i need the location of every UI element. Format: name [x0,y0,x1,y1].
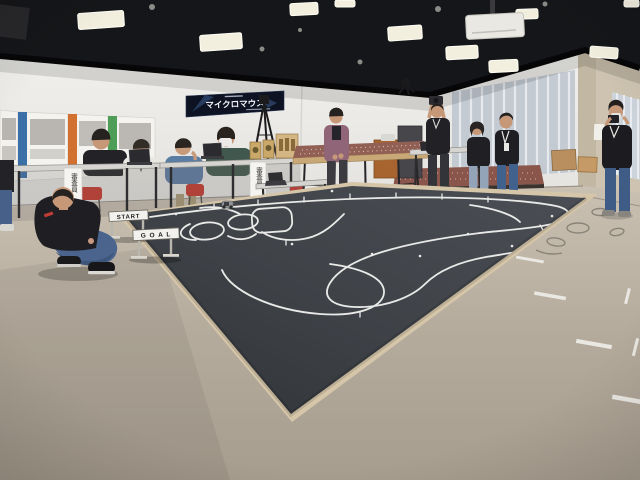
photo-vignette [0,0,640,480]
competition-room-photo: マイクロマウス [0,0,640,480]
scene-canvas: マイクロマウス [0,0,640,480]
